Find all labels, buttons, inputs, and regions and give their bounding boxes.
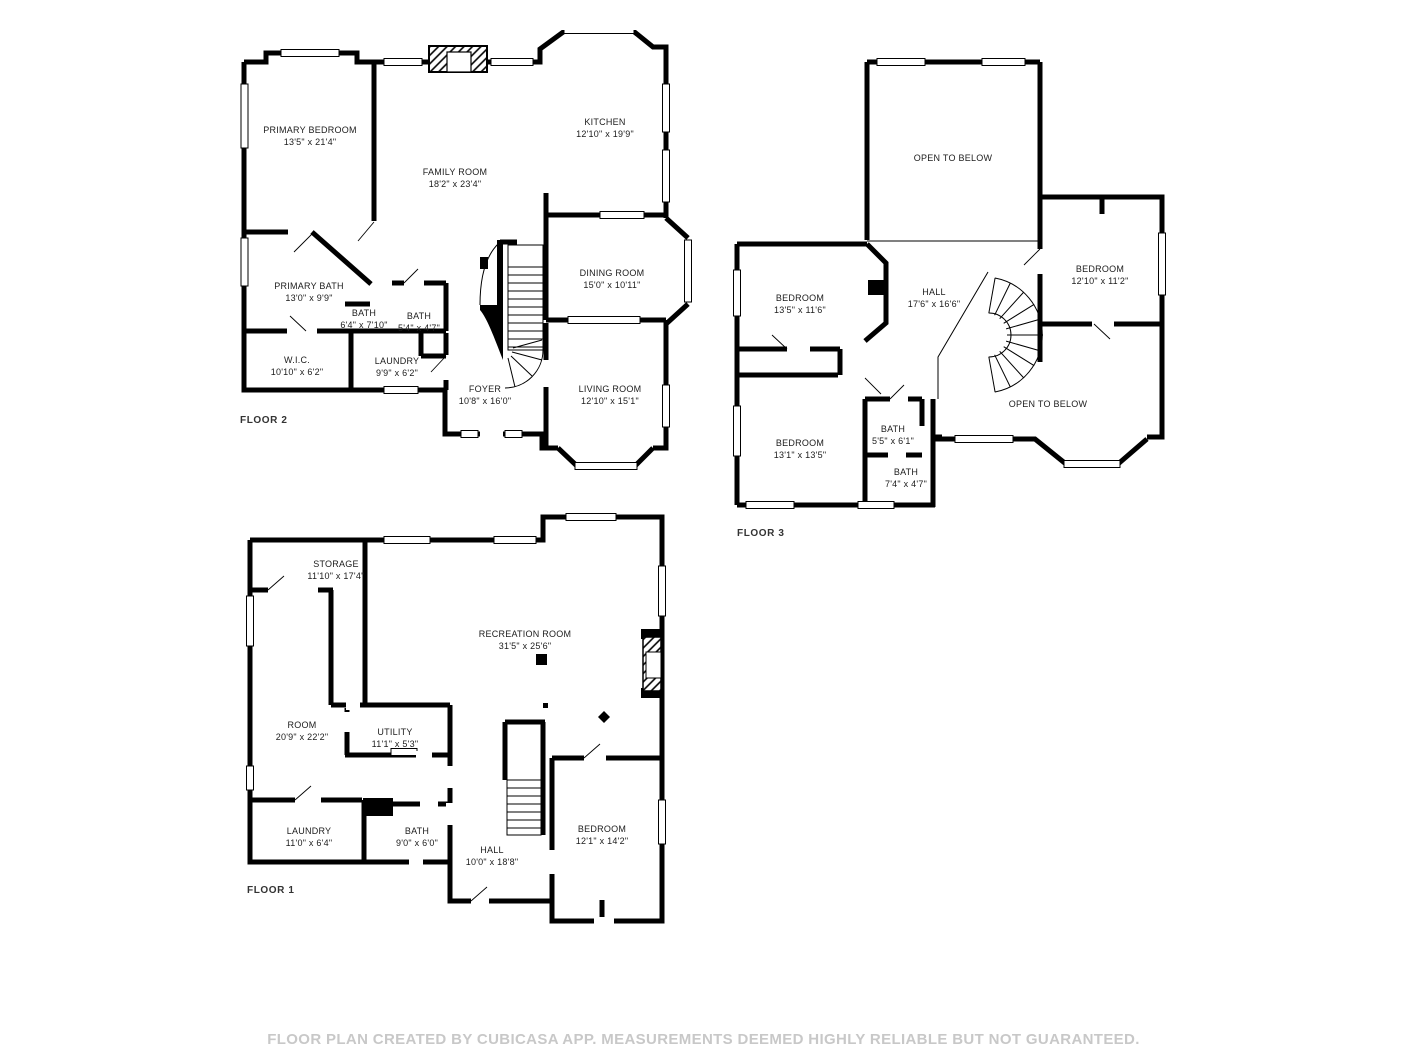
room-name: LIVING ROOM <box>579 383 642 395</box>
room-dims: 13'5" x 21'4" <box>263 136 356 148</box>
room-dims: 12'10" x 15'1" <box>579 395 642 407</box>
room-dims: 7'4" x 4'7" <box>885 478 927 490</box>
room-dims: 11'1" x 5'3" <box>372 738 419 750</box>
room-label-family-room: FAMILY ROOM 18'2" x 23'4" <box>423 166 487 190</box>
floor-1-bath-fixture-block <box>363 798 393 816</box>
room-name: BATH <box>396 825 438 837</box>
floor-1-post-markers <box>536 654 610 723</box>
room-name: DINING ROOM <box>580 267 645 279</box>
room-name: BATH <box>398 310 440 322</box>
room-label-bath-f3-lower: BATH 7'4" x 4'7" <box>885 466 927 490</box>
room-dims: 11'0" x 6'4" <box>286 837 333 849</box>
room-label-foyer: FOYER 10'8" x 16'0" <box>459 383 512 407</box>
floorplan-page: PRIMARY BEDROOM 13'5" x 21'4" KITCHEN 12… <box>0 0 1407 1055</box>
floor-2-staircase <box>480 240 543 388</box>
room-name: ROOM <box>276 719 329 731</box>
room-dims: 17'6" x 16'6" <box>908 298 961 310</box>
room-dims: 12'10" x 11'2" <box>1071 275 1128 287</box>
room-label-laundry-f2: LAUNDRY 9'9" x 6'2" <box>375 355 420 379</box>
floor-3-chimney-block <box>868 280 886 295</box>
floor-1-door-openings <box>295 701 614 926</box>
room-dims: 15'0" x 10'11" <box>580 279 645 291</box>
room-name: BEDROOM <box>774 292 826 304</box>
floor-3-label: FLOOR 3 <box>737 528 785 539</box>
room-name: HALL <box>466 844 519 856</box>
room-label-dining-room: DINING ROOM 15'0" x 10'11" <box>580 267 645 291</box>
room-label-open-to-below-2: OPEN TO BELOW <box>1009 398 1087 410</box>
room-label-hall-f3: HALL 17'6" x 16'6" <box>908 286 961 310</box>
room-dims: 11'10" x 17'4" <box>307 570 364 582</box>
room-label-room: ROOM 20'9" x 22'2" <box>276 719 329 743</box>
room-name: FOYER <box>459 383 512 395</box>
room-name: BATH <box>885 466 927 478</box>
room-dims: 5'4" x 4'7" <box>398 322 440 334</box>
room-dims: 13'5" x 11'6" <box>774 304 826 316</box>
floor-3-bedroom-door-opening <box>1092 320 1114 329</box>
room-label-living-room: LIVING ROOM 12'10" x 15'1" <box>579 383 642 407</box>
room-name: PRIMARY BATH <box>274 280 344 292</box>
room-name: FAMILY ROOM <box>423 166 487 178</box>
room-label-bath: BATH 5'4" x 4'7" <box>398 310 440 334</box>
floor-1-fireplace-icon <box>641 629 662 698</box>
room-name: W.I.C. <box>271 354 324 366</box>
room-name: HALL <box>908 286 961 298</box>
room-dims: 10'10" x 6'2" <box>271 366 324 378</box>
room-name: UTILITY <box>372 726 419 738</box>
room-name: LAUNDRY <box>286 825 333 837</box>
room-name: OPEN TO BELOW <box>1009 398 1087 410</box>
room-dims: 5'5" x 6'1" <box>872 435 914 447</box>
room-name: BATH <box>872 423 914 435</box>
floor-2-front-door-opening <box>480 429 503 439</box>
floor-2-fireplace-icon <box>429 46 487 72</box>
room-label-storage: STORAGE 11'10" x 17'4" <box>307 558 364 582</box>
room-label-bedroom-bottom: BEDROOM 13'1" x 13'5" <box>774 437 827 461</box>
room-label-wic: W.I.C. 10'10" x 6'2" <box>271 354 324 378</box>
disclaimer-text: FLOOR PLAN CREATED BY CUBICASA APP. MEAS… <box>0 1031 1407 1048</box>
room-label-primary-bedroom: PRIMARY BEDROOM 13'5" x 21'4" <box>263 124 356 148</box>
room-dims: 9'9" x 6'2" <box>375 367 420 379</box>
room-label-primary-bath: PRIMARY BATH 13'0" x 9'9" <box>274 280 344 304</box>
room-dims: 20'9" x 22'2" <box>276 731 329 743</box>
room-name: KITCHEN <box>576 116 634 128</box>
room-dims: 18'2" x 23'4" <box>423 178 487 190</box>
room-name: OPEN TO BELOW <box>914 152 992 164</box>
room-dims: 10'8" x 16'0" <box>459 395 512 407</box>
floor-1-label: FLOOR 1 <box>247 885 295 896</box>
room-label-open-to-below-1: OPEN TO BELOW <box>914 152 992 164</box>
room-dims: 12'1" x 14'2" <box>576 835 629 847</box>
room-name: PRIMARY BEDROOM <box>263 124 356 136</box>
room-label-utility: UTILITY 11'1" x 5'3" <box>372 726 419 750</box>
room-label-kitchen: KITCHEN 12'10" x 19'9" <box>576 116 634 140</box>
room-label-laundry-f1: LAUNDRY 11'0" x 6'4" <box>286 825 333 849</box>
room-dims: 6'4" x 7'10" <box>340 319 387 331</box>
room-label-bath-small: BATH 6'4" x 7'10" <box>340 307 387 331</box>
room-name: STORAGE <box>307 558 364 570</box>
room-dims: 12'10" x 19'9" <box>576 128 634 140</box>
floor-1-staircase <box>507 780 541 835</box>
room-name: BATH <box>340 307 387 319</box>
room-dims: 10'0" x 18'8" <box>466 856 519 868</box>
room-name: RECREATION ROOM <box>479 628 572 640</box>
room-label-bedroom-f1: BEDROOM 12'1" x 14'2" <box>576 823 629 847</box>
room-label-bedroom-right: BEDROOM 12'10" x 11'2" <box>1071 263 1128 287</box>
room-dims: 9'0" x 6'0" <box>396 837 438 849</box>
room-label-bedroom-left: BEDROOM 13'5" x 11'6" <box>774 292 826 316</box>
floor-2-label: FLOOR 2 <box>240 415 288 426</box>
room-dims: 13'0" x 9'9" <box>274 292 344 304</box>
room-name: BEDROOM <box>1071 263 1128 275</box>
room-dims: 31'5" x 25'6" <box>479 640 572 652</box>
room-name: BEDROOM <box>576 823 629 835</box>
room-label-bath-f3-upper: BATH 5'5" x 6'1" <box>872 423 914 447</box>
room-name: LAUNDRY <box>375 355 420 367</box>
room-dims: 13'1" x 13'5" <box>774 449 827 461</box>
room-label-hall-f1: HALL 10'0" x 18'8" <box>466 844 519 868</box>
room-label-bath-f1: BATH 9'0" x 6'0" <box>396 825 438 849</box>
room-name: BEDROOM <box>774 437 827 449</box>
room-label-recreation-room: RECREATION ROOM 31'5" x 25'6" <box>479 628 572 652</box>
